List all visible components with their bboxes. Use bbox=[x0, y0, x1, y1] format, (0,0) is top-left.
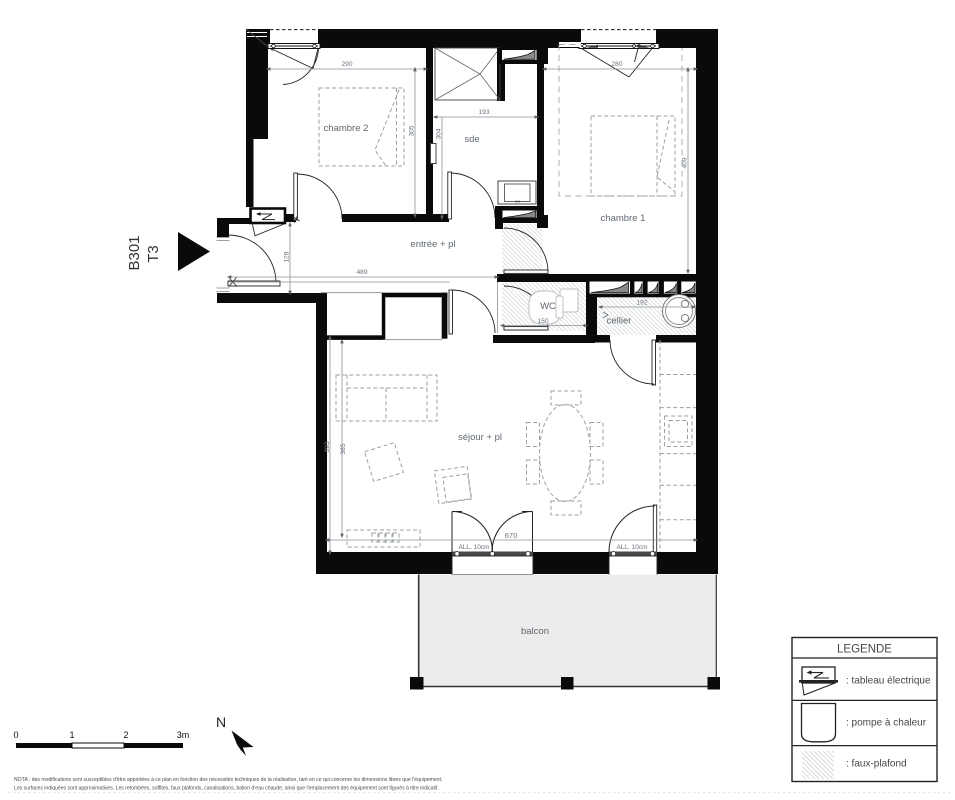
svg-text:cellier: cellier bbox=[607, 316, 632, 327]
svg-text:séjour + pl: séjour + pl bbox=[458, 432, 502, 443]
svg-text:NOTA : des modifications sont: NOTA : des modifications sont susceptibl… bbox=[14, 777, 442, 783]
svg-text:304: 304 bbox=[436, 128, 443, 139]
svg-text:192: 192 bbox=[636, 300, 647, 307]
svg-text:B301: B301 bbox=[126, 235, 143, 270]
svg-text:409: 409 bbox=[682, 157, 689, 168]
svg-text:290: 290 bbox=[341, 61, 352, 68]
svg-text:chambre 1: chambre 1 bbox=[601, 213, 646, 224]
svg-text:128: 128 bbox=[284, 251, 291, 262]
svg-text:T3: T3 bbox=[145, 245, 162, 263]
svg-text:ALL. 10cm: ALL. 10cm bbox=[616, 544, 647, 551]
svg-text:N: N bbox=[216, 714, 226, 730]
svg-text:ALL. 10cm: ALL. 10cm bbox=[458, 544, 489, 551]
svg-text:393: 393 bbox=[324, 441, 331, 452]
svg-text:entrée + pl: entrée + pl bbox=[410, 239, 455, 250]
svg-text:193: 193 bbox=[478, 109, 489, 116]
svg-text:Les surfaces indiquées sont ap: Les surfaces indiquées sont approximativ… bbox=[14, 786, 439, 792]
svg-text:chambre 2: chambre 2 bbox=[324, 123, 369, 134]
svg-text:balcon: balcon bbox=[521, 626, 549, 637]
svg-text:150: 150 bbox=[537, 318, 548, 325]
svg-text:3m: 3m bbox=[177, 730, 190, 740]
svg-text:WC: WC bbox=[540, 301, 556, 312]
svg-text:sde: sde bbox=[464, 134, 479, 145]
svg-text:1: 1 bbox=[69, 730, 74, 740]
svg-text:2: 2 bbox=[123, 730, 128, 740]
svg-text:280: 280 bbox=[611, 61, 622, 68]
svg-text:305: 305 bbox=[409, 125, 416, 136]
svg-text:670: 670 bbox=[505, 531, 518, 540]
svg-text:: tableau électrique: : tableau électrique bbox=[846, 676, 931, 687]
svg-text:: pompe à chaleur: : pompe à chaleur bbox=[846, 718, 927, 729]
svg-text:: faux-plafond: : faux-plafond bbox=[846, 759, 907, 770]
svg-text:489: 489 bbox=[356, 269, 367, 276]
svg-text:385: 385 bbox=[340, 443, 347, 454]
svg-text:0: 0 bbox=[13, 730, 18, 740]
svg-text:LEGENDE: LEGENDE bbox=[837, 644, 892, 656]
